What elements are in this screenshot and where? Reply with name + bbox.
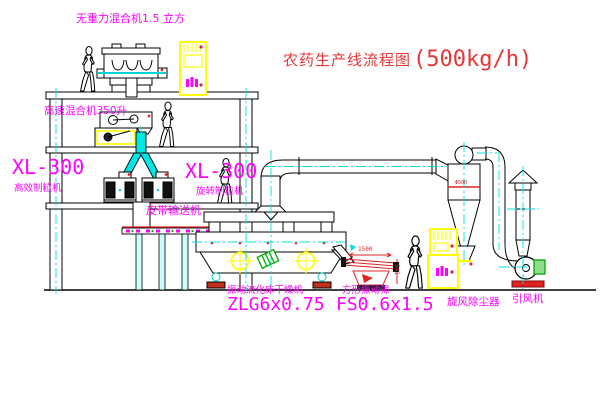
gravity-free-mixer <box>97 44 167 97</box>
person-top-floor <box>81 47 95 92</box>
label-granulator-left-model: XL-300 <box>12 157 84 177</box>
title-text: 农药生产线流程图 <box>283 49 411 70</box>
label-fan: 引风机 <box>512 294 544 305</box>
label-dryer-model: ZLG6x0.75 <box>227 296 325 314</box>
label-granulator-left-name: 高效制粒机 <box>14 184 62 194</box>
label-gravityless-mixer: 无重力混合机1.5 立方 <box>76 13 185 24</box>
granulator-right <box>142 172 174 202</box>
process-flow-diagram: 农药生产线流程图 (500kg/h) 无重力混合机1.5 立方 高速混合机350… <box>0 0 600 403</box>
title-capacity: (500kg/h) <box>413 47 532 72</box>
person-ground <box>406 236 423 288</box>
fluid-bed-dryer <box>196 212 354 288</box>
induced-draft-fan <box>512 257 545 287</box>
dim-screen-height: 541 <box>393 264 399 275</box>
exhaust-duct <box>255 157 450 212</box>
label-belt-conveyor: 皮带输送机 <box>146 205 201 216</box>
granulator-left <box>104 172 136 202</box>
label-high-speed-mixer: 高速混合机350升 <box>44 106 127 117</box>
control-cabinet-top <box>180 42 206 95</box>
label-cyclone: 旋风除尘器 <box>447 297 500 308</box>
fan-motor <box>534 260 545 274</box>
label-granulator-right-model: XL-300 <box>185 161 257 181</box>
dim-cyclone: Φ500 <box>455 181 467 186</box>
control-cabinet-right <box>428 229 458 288</box>
label-screen-model: FS0.6x1.5 <box>336 296 434 314</box>
person-second-floor <box>160 102 174 147</box>
label-granulator-right-name: 旋转制粒机 <box>196 187 244 197</box>
dim-screen-length: 1500 <box>358 247 372 253</box>
page-title: 农药生产线流程图 (500kg/h) <box>283 47 532 72</box>
